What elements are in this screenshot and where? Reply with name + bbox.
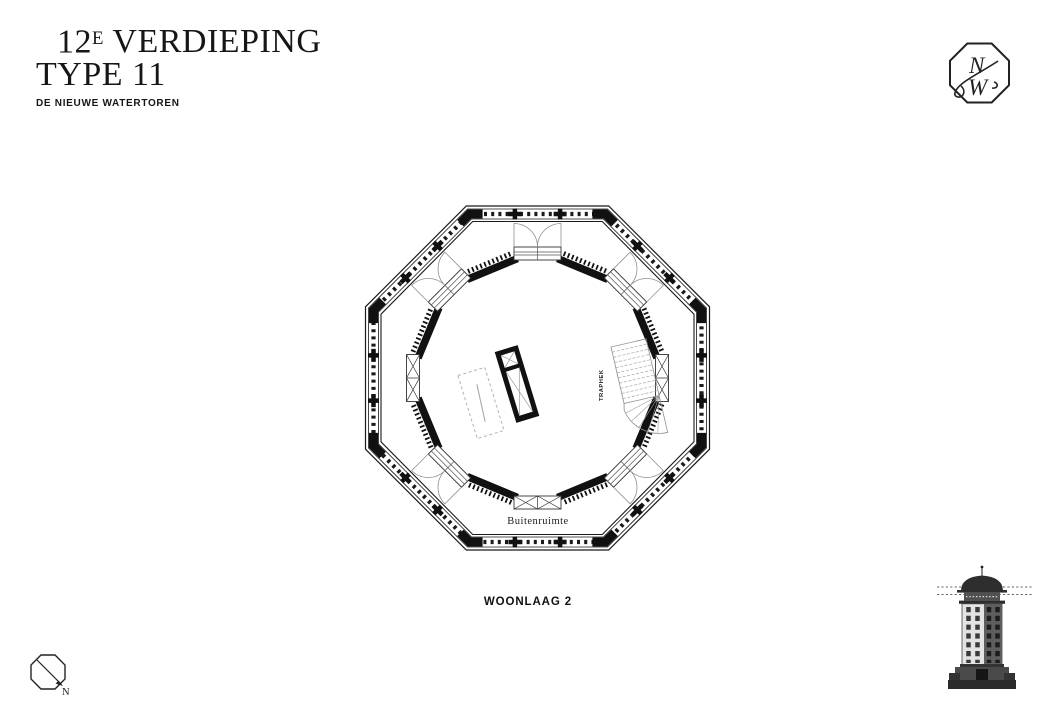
stair-label: TRAPHEK bbox=[599, 369, 605, 401]
floor-ordinal-suffix: E bbox=[92, 28, 103, 49]
tower-elevation bbox=[937, 566, 1032, 689]
tower-eave bbox=[957, 590, 1007, 593]
floorplan-sheet: { "title": { "floor_number": "12", "floo… bbox=[0, 0, 1059, 720]
balustrade-outline-inner bbox=[381, 222, 694, 535]
wall-segment bbox=[561, 260, 604, 278]
compass-north-label: N bbox=[62, 687, 70, 698]
project-subtitle: DE NIEUWE WATERTOREN bbox=[36, 98, 321, 109]
dashed-void-outline bbox=[458, 367, 504, 438]
north-compass: N bbox=[31, 655, 70, 698]
page-title-line2: TYPE 11 bbox=[36, 58, 321, 91]
tower-cornice bbox=[959, 601, 1005, 604]
tower-base-wing-right bbox=[1004, 673, 1015, 680]
floor-word: VERDIEPING bbox=[112, 23, 321, 60]
truss-window bbox=[656, 355, 669, 402]
terrace-label: Buitenruimte bbox=[507, 516, 568, 527]
balustrade-balusters-dotted bbox=[374, 214, 702, 542]
tower-base-wing-left bbox=[949, 673, 960, 680]
compass-arrow-line bbox=[37, 660, 60, 683]
tower-plinth bbox=[948, 680, 1016, 689]
plan-caption: WOONLAAG 2 bbox=[484, 596, 572, 608]
title-block: 12EVERDIEPING TYPE 11 DE NIEUWE WATERTOR… bbox=[36, 22, 321, 109]
tower-dome bbox=[961, 576, 1003, 592]
terrace-door-north bbox=[514, 224, 561, 261]
brand-logo: N W bbox=[950, 44, 1009, 103]
tower-base-door bbox=[976, 669, 988, 680]
tower-finial-ball bbox=[981, 566, 984, 569]
balustrade-outline-3 bbox=[379, 219, 697, 537]
door-swing-arcs bbox=[514, 224, 561, 248]
elevator-shaft bbox=[495, 345, 540, 423]
tower-mid-cornice bbox=[960, 664, 1004, 667]
floor-number: 12 bbox=[57, 23, 92, 60]
logo-letter-w: W bbox=[968, 75, 989, 100]
page-title-line1: 12EVERDIEPING bbox=[57, 22, 321, 58]
